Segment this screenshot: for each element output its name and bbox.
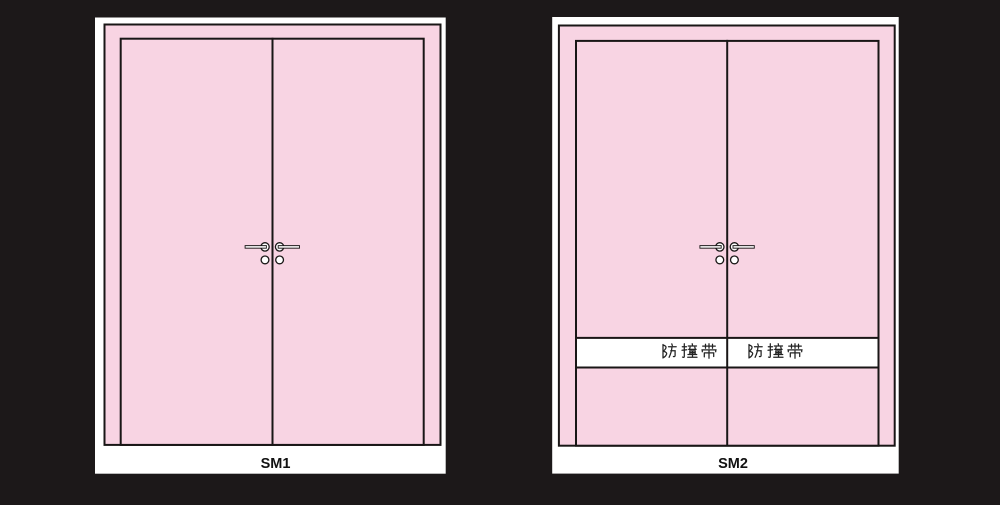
svg-text:SM2: SM2	[718, 456, 748, 472]
svg-text:SM1: SM1	[261, 456, 291, 472]
